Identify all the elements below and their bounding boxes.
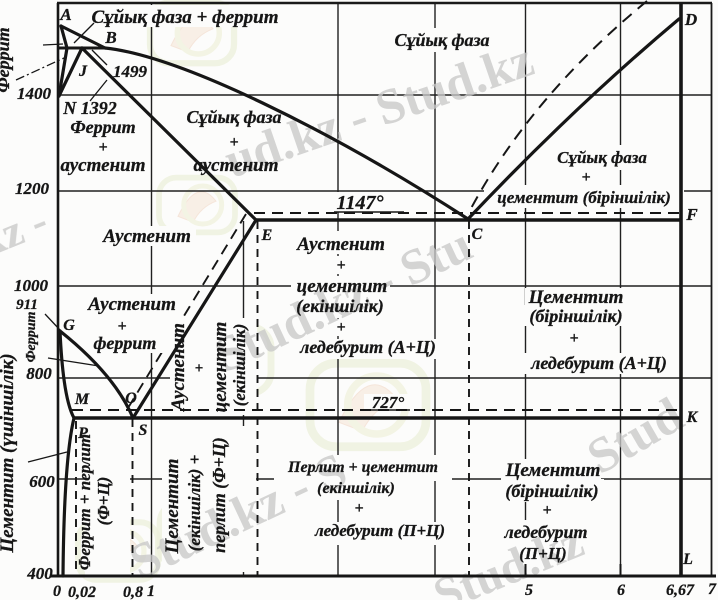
svg-text:Цементит (үшіншілік): Цементит (үшіншілік) (0, 353, 18, 553)
svg-text:Феррит: Феррит (70, 117, 135, 137)
svg-text:0: 0 (53, 583, 61, 600)
svg-text:1200: 1200 (15, 179, 50, 198)
svg-text:ледебурит (А+Ц): ледебурит (А+Ц) (299, 337, 436, 358)
svg-text:Сұйық фаза + феррит: Сұйық фаза + феррит (91, 7, 278, 28)
svg-text:Аустенит: Аустенит (168, 323, 189, 412)
svg-text:1400: 1400 (17, 84, 52, 103)
svg-text:аустенит: аустенит (194, 155, 279, 176)
svg-text:6: 6 (617, 582, 625, 599)
svg-text:+: + (354, 500, 363, 517)
svg-text:цементит: цементит (210, 322, 231, 413)
svg-text:J: J (78, 63, 88, 80)
svg-text:+: + (336, 257, 345, 274)
svg-text:Феррит: Феррит (24, 311, 39, 362)
svg-text:перлит (Ф+Ц): перлит (Ф+Ц) (209, 437, 230, 553)
svg-text:феррит: феррит (94, 333, 157, 353)
svg-text:цементит (біріншілік): цементит (біріншілік) (497, 188, 671, 207)
svg-text:O: O (125, 390, 137, 407)
svg-text:Цементит: Цементит (162, 459, 183, 555)
svg-text:N 1392: N 1392 (62, 98, 117, 118)
svg-text:(Ф+Ц): (Ф+Ц) (94, 477, 113, 526)
svg-text:Феррит: Феррит (0, 27, 13, 92)
svg-text:L: L (682, 551, 693, 568)
svg-text:+: + (542, 502, 551, 519)
svg-text:Аустенит: Аустенит (296, 234, 385, 255)
svg-text:аустенит: аустенит (61, 155, 146, 176)
svg-text:727°: 727° (372, 393, 405, 412)
svg-text:Аустенит: Аустенит (87, 294, 176, 315)
svg-text:B: B (104, 28, 116, 47)
svg-text:S: S (139, 422, 148, 439)
svg-text:(П+Ц): (П+Ц) (519, 544, 566, 563)
svg-text:7: 7 (708, 581, 717, 598)
svg-text:D: D (684, 10, 697, 29)
svg-text:Перлит + цементит: Перлит + цементит (287, 459, 438, 476)
svg-text:911: 911 (16, 297, 38, 313)
svg-text:+: + (569, 330, 578, 347)
svg-text:(біріншілік): (біріншілік) (505, 481, 598, 502)
svg-text:1000: 1000 (14, 276, 49, 295)
svg-text:(екіншілік): (екіншілік) (296, 296, 383, 317)
svg-text:400: 400 (26, 564, 53, 583)
svg-text:Сұйық фаза: Сұйық фаза (186, 107, 281, 127)
svg-text:0,02: 0,02 (68, 584, 96, 600)
svg-text:цементит: цементит (297, 276, 388, 297)
svg-text:Цементит: Цементит (528, 287, 624, 308)
svg-text:+: + (581, 169, 590, 186)
svg-text:Сұйық фаза: Сұйық фаза (557, 148, 647, 167)
svg-text:0,8: 0,8 (123, 584, 143, 600)
svg-text:A: A (59, 5, 71, 24)
svg-text:C: C (472, 226, 483, 243)
svg-text:+: + (192, 364, 208, 373)
svg-text:(екіншілік): (екіншілік) (230, 324, 249, 407)
svg-text:+: + (229, 134, 238, 151)
svg-text:800: 800 (26, 364, 52, 383)
svg-text:Сұйық фаза: Сұйық фаза (394, 30, 489, 50)
svg-text:1499: 1499 (113, 62, 148, 81)
svg-text:(екіншілік): (екіншілік) (317, 480, 395, 497)
svg-text:(екіншілік) +: (екіншілік) + (185, 455, 204, 552)
svg-text:+: + (336, 319, 345, 336)
svg-text:Аустенит: Аустенит (102, 226, 191, 247)
svg-text:1147°: 1147° (337, 192, 384, 214)
svg-text:ледебурит: ледебурит (504, 522, 588, 542)
svg-text:6,67: 6,67 (666, 582, 695, 599)
svg-text:5: 5 (525, 582, 533, 599)
svg-text:600: 600 (29, 472, 55, 491)
svg-text:1: 1 (147, 583, 155, 600)
svg-text:Феррит + перлит: Феррит + перлит (75, 434, 94, 570)
svg-text:G: G (63, 317, 75, 334)
svg-text:E: E (261, 227, 273, 244)
svg-text:M: M (74, 391, 90, 408)
svg-text:F: F (685, 205, 698, 224)
svg-text:(біріншілік): (біріншілік) (529, 306, 622, 327)
svg-text:ледебурит (А+Ц): ледебурит (А+Ц) (530, 353, 667, 374)
svg-text:Цементит: Цементит (505, 460, 601, 481)
svg-text:ледебурит (П+Ц): ледебурит (П+Ц) (314, 521, 445, 540)
svg-text:+: + (98, 139, 107, 156)
svg-text:K: K (686, 409, 699, 426)
